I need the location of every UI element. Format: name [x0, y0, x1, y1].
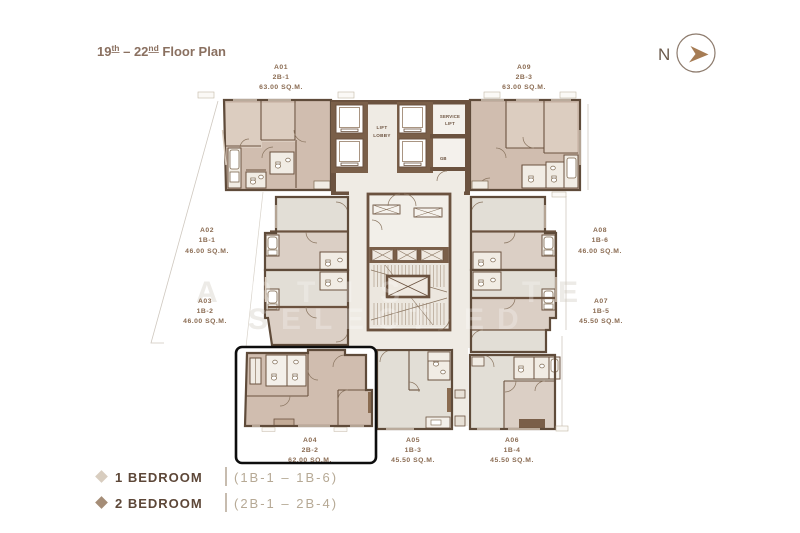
- svg-text:46.00 SQ.M.: 46.00 SQ.M.: [185, 248, 229, 255]
- svg-text:2B-1: 2B-1: [273, 74, 290, 81]
- svg-text:2B-2: 2B-2: [302, 447, 319, 454]
- svg-text:E: E: [344, 303, 364, 336]
- svg-text:E: E: [558, 276, 578, 309]
- svg-text:A08: A08: [593, 227, 607, 234]
- svg-text:S: S: [248, 303, 268, 336]
- svg-text:45.50 SQ.M.: 45.50 SQ.M.: [490, 457, 534, 464]
- svg-text:T: T: [409, 303, 427, 336]
- svg-text:A03: A03: [198, 298, 212, 305]
- svg-text:(2B-1 – 2B-4): (2B-1 – 2B-4): [234, 496, 338, 511]
- svg-text:E: E: [281, 303, 301, 336]
- svg-text:2B-3: 2B-3: [516, 74, 533, 81]
- svg-text:LOBBY: LOBBY: [373, 133, 391, 138]
- svg-text:1 BEDROOM: 1 BEDROOM: [115, 470, 203, 485]
- svg-text:N: N: [658, 45, 670, 64]
- svg-text:2 BEDROOM: 2 BEDROOM: [115, 496, 203, 511]
- svg-text:1B-6: 1B-6: [592, 237, 609, 244]
- svg-text:1B-2: 1B-2: [197, 308, 214, 315]
- svg-text:LIFT: LIFT: [377, 125, 388, 130]
- svg-text:1B-3: 1B-3: [405, 447, 422, 454]
- svg-text:(1B-1 – 1B-6): (1B-1 – 1B-6): [234, 470, 338, 485]
- svg-text:A05: A05: [406, 437, 420, 444]
- svg-text:D: D: [497, 303, 519, 336]
- svg-text:A04: A04: [303, 437, 317, 444]
- svg-text:46.00 SQ.M.: 46.00 SQ.M.: [578, 248, 622, 255]
- svg-text:63.00 SQ.M.: 63.00 SQ.M.: [259, 84, 303, 91]
- svg-text:A01: A01: [274, 64, 288, 71]
- svg-text:L: L: [314, 303, 332, 336]
- svg-text:46.00 SQ.M.: 46.00 SQ.M.: [183, 318, 227, 325]
- svg-text:45.50 SQ.M.: 45.50 SQ.M.: [391, 457, 435, 464]
- svg-text:GB: GB: [440, 156, 446, 161]
- svg-text:E: E: [464, 303, 484, 336]
- svg-text:63.00 SQ.M.: 63.00 SQ.M.: [502, 84, 546, 91]
- svg-text:A07: A07: [594, 298, 608, 305]
- svg-text:1B-1: 1B-1: [199, 237, 216, 244]
- svg-text:A02: A02: [200, 227, 214, 234]
- svg-text:C: C: [377, 303, 399, 336]
- svg-text:T: T: [522, 276, 540, 309]
- svg-text:45.50 SQ.M.: 45.50 SQ.M.: [579, 318, 623, 325]
- svg-text:1B-5: 1B-5: [593, 308, 610, 315]
- svg-text:1B-4: 1B-4: [504, 447, 521, 454]
- svg-text:A09: A09: [517, 64, 531, 71]
- svg-text:A06: A06: [505, 437, 519, 444]
- svg-text:SERVICE: SERVICE: [440, 114, 460, 119]
- svg-text:LIFT: LIFT: [445, 121, 455, 126]
